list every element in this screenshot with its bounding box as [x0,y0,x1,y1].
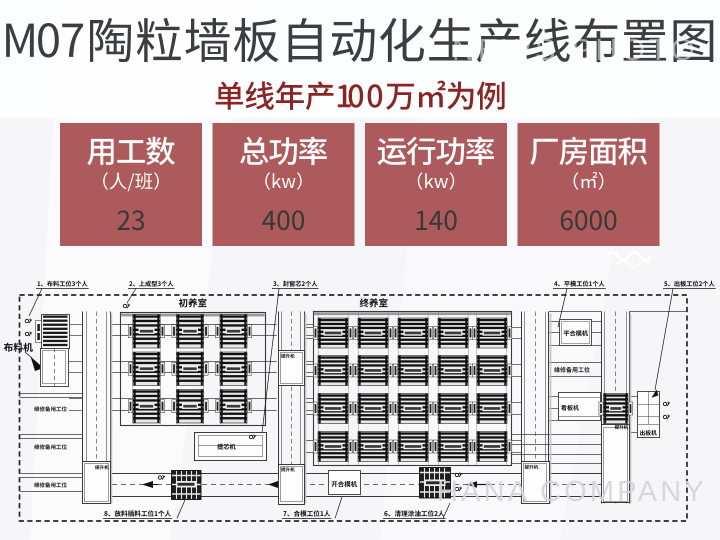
svg-text:NEWS PHOTO: NEWS PHOTO [452,32,698,67]
svg-text:HANA COMPANY: HANA COMPANY [437,476,707,508]
